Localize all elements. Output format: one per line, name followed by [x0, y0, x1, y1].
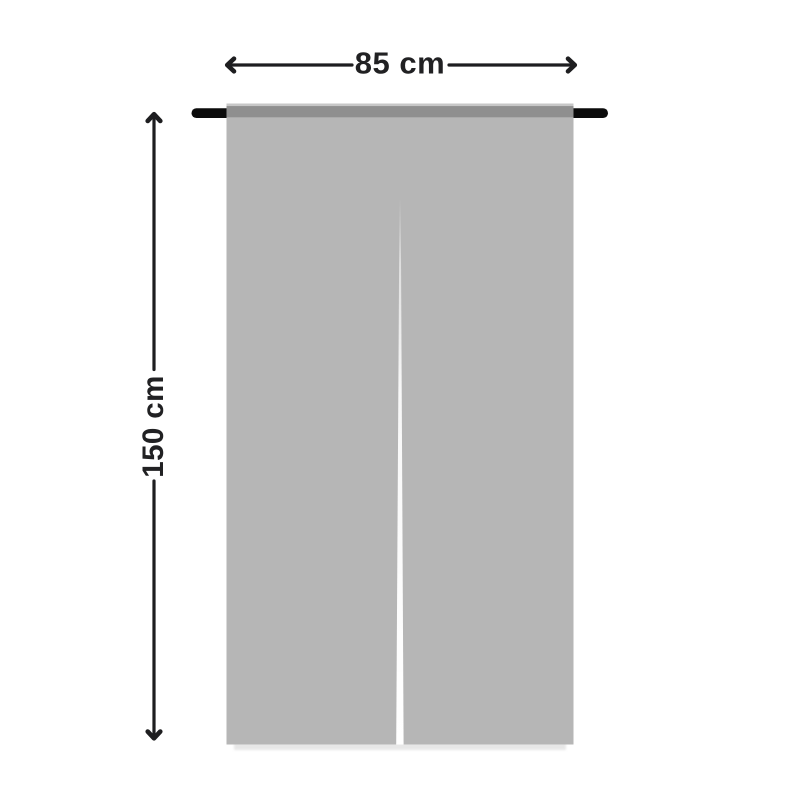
svg-text:85 cm: 85 cm: [355, 46, 445, 81]
svg-text:150 cm: 150 cm: [137, 375, 170, 477]
